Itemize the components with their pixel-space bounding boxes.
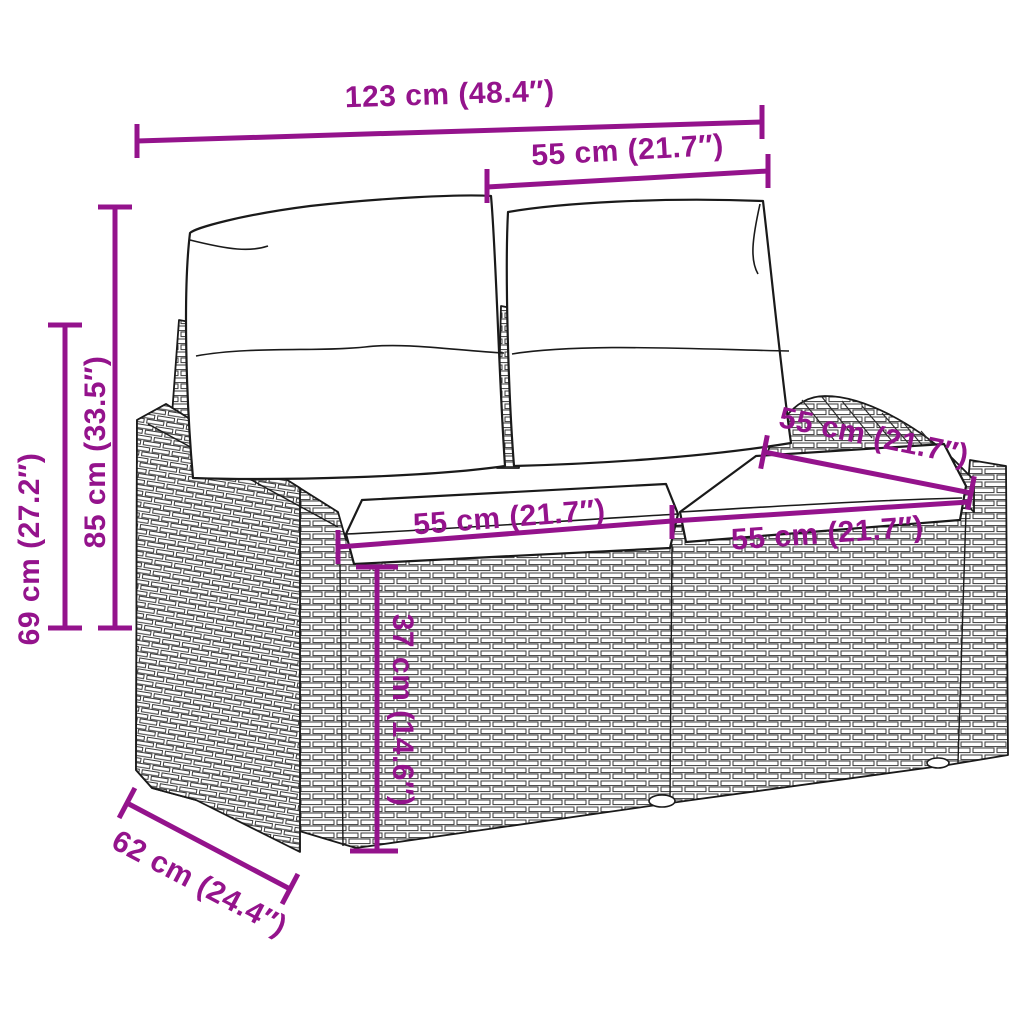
back-cushion-left [186,195,505,478]
dim-total-width-label: 123 cm (48.4″) [344,75,555,115]
dim-armrest-height-label: 69 cm (27.2″) [13,453,46,646]
diagram-canvas: 123 cm (48.4″) 55 cm (21.7″) 85 cm (33.5… [0,0,1024,1024]
dimension-diagram: 123 cm (48.4″) 55 cm (21.7″) 85 cm (33.5… [0,0,1024,1024]
sofa-foot-middle [649,795,675,807]
dim-back-cushion-width-label: 55 cm (21.7″) [530,129,724,173]
dim-total-height-label: 85 cm (33.5″) [79,356,112,549]
back-cushion-right [507,200,791,466]
dim-total-height: 85 cm (33.5″) [79,207,132,628]
dim-back-cushion-width: 55 cm (21.7″) [487,129,768,203]
sofa-foot-right [927,758,949,768]
dim-armrest-height: 69 cm (27.2″) [13,325,82,645]
dim-seat-height-label: 37 cm (14.6″) [386,614,419,807]
